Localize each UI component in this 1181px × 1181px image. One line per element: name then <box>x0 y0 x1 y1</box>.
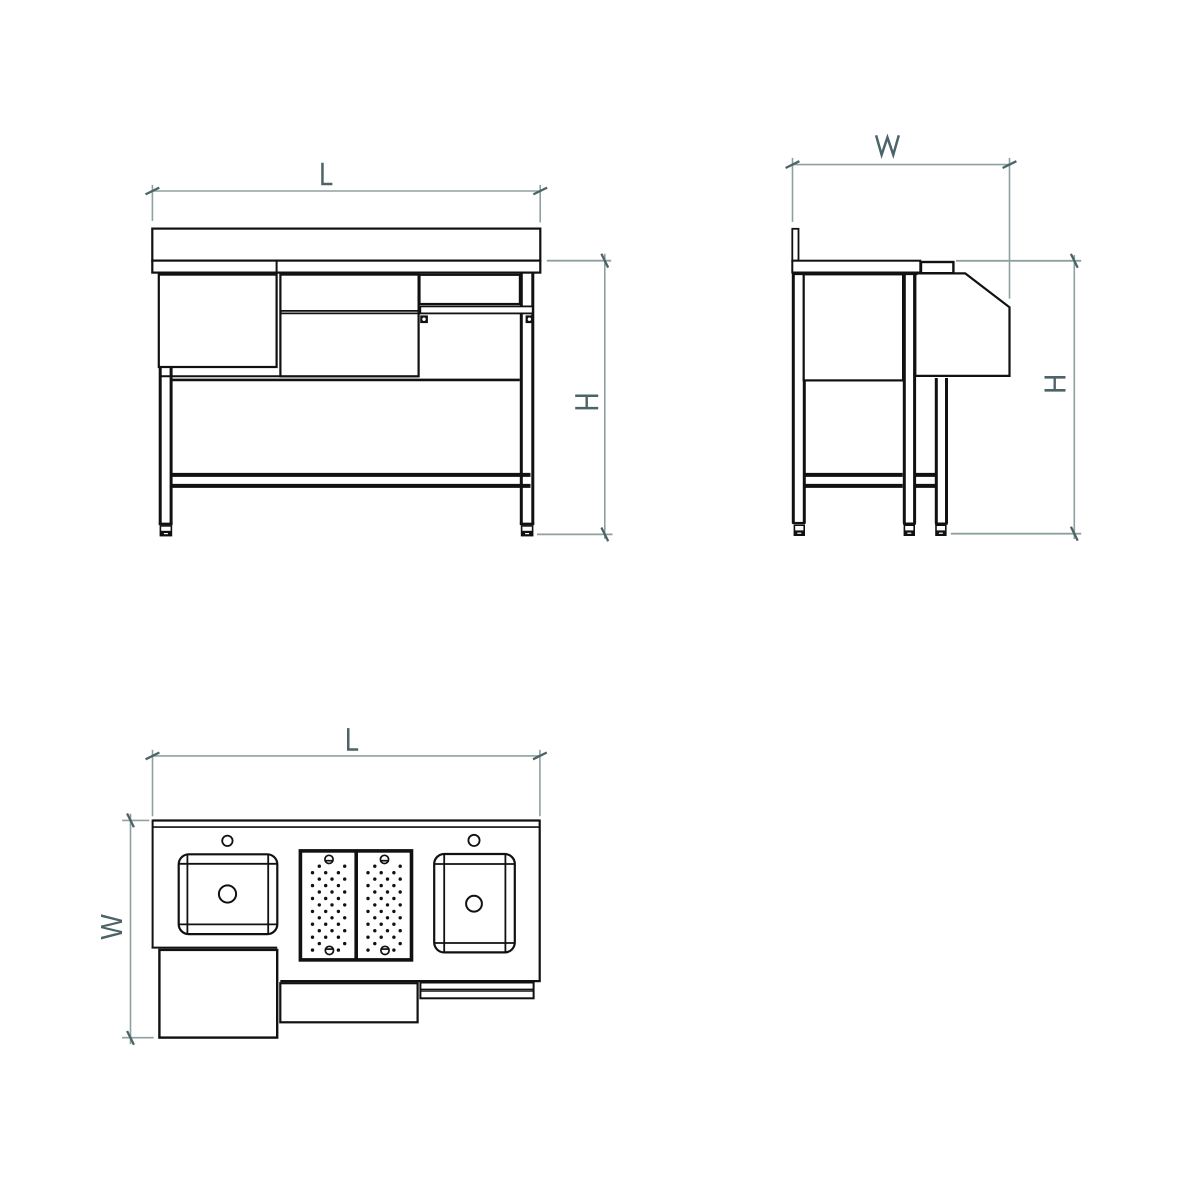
svg-text:H: H <box>1038 374 1073 394</box>
svg-text:W: W <box>95 914 129 940</box>
